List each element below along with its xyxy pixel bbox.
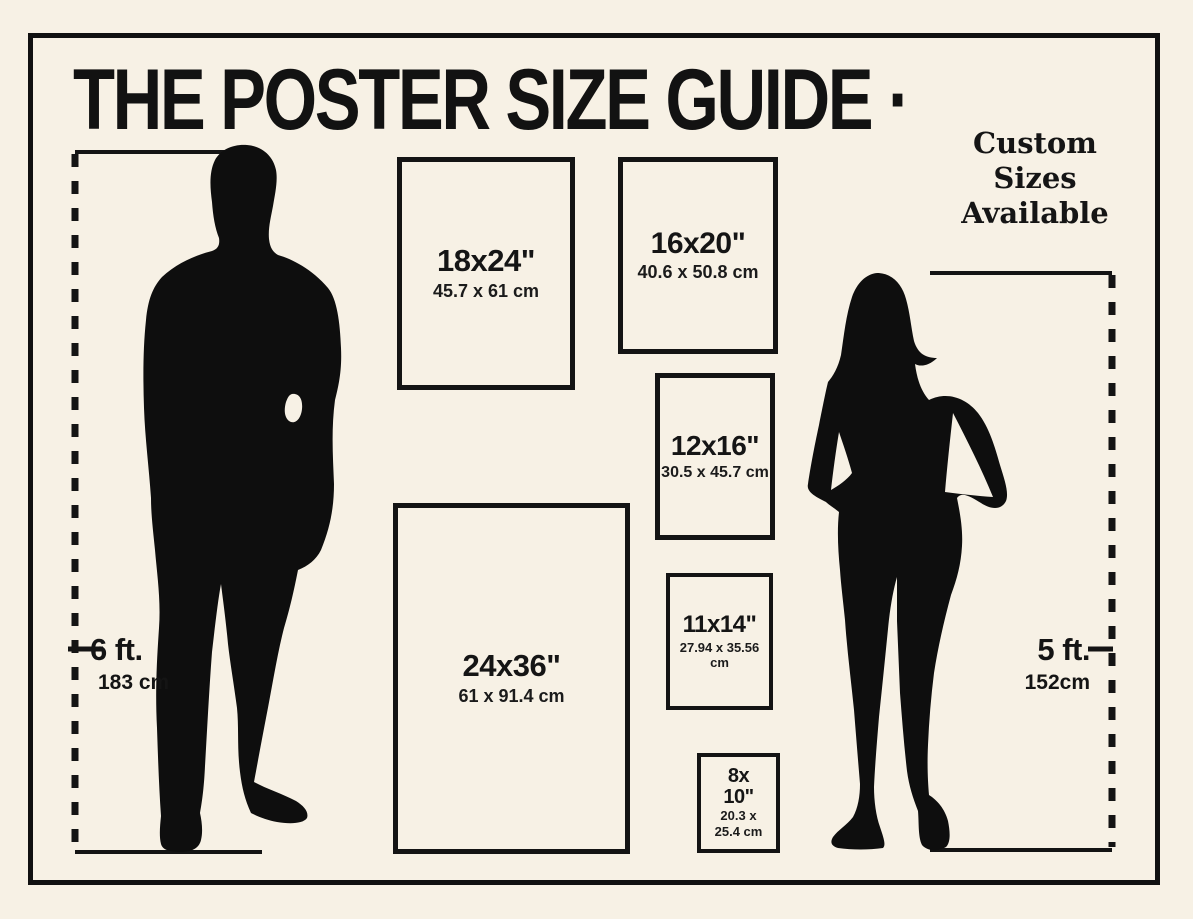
poster-metric-label: 30.5 x 45.7 cm bbox=[661, 464, 769, 482]
poster-size-label: 16x20" bbox=[651, 228, 746, 260]
poster-size-label-line1: 8x bbox=[728, 766, 749, 787]
poster-box-18x24: 18x24" 45.7 x 61 cm bbox=[397, 157, 575, 390]
poster-size-label: 12x16" bbox=[671, 431, 759, 460]
female-height-feet: 5 ft. bbox=[990, 634, 1090, 665]
poster-size-guide: THE POSTER SIZE GUIDE · Custom Sizes Ava… bbox=[0, 0, 1193, 919]
poster-box-16x20: 16x20" 40.6 x 50.8 cm bbox=[618, 157, 778, 354]
poster-box-8x10: 8x 10" 20.3 x 25.4 cm bbox=[697, 753, 780, 853]
poster-size-label: 11x14" bbox=[683, 612, 757, 637]
poster-box-11x14: 11x14" 27.94 x 35.56 cm bbox=[666, 573, 773, 710]
poster-metric-label-line1: 20.3 x bbox=[720, 809, 756, 824]
male-height-label: 6 ft. 183 cm bbox=[90, 634, 169, 693]
poster-box-24x36: 24x36" 61 x 91.4 cm bbox=[393, 503, 630, 854]
poster-size-label: 24x36" bbox=[463, 650, 561, 683]
poster-metric-label: 27.94 x 35.56 cm bbox=[670, 641, 769, 671]
male-height-cm: 183 cm bbox=[98, 672, 169, 693]
female-height-label: 5 ft. 152cm bbox=[990, 634, 1090, 693]
male-height-feet: 6 ft. bbox=[90, 634, 169, 665]
poster-metric-label: 61 x 91.4 cm bbox=[458, 686, 564, 707]
poster-size-label-line2: 10" bbox=[723, 787, 753, 808]
poster-size-label: 18x24" bbox=[437, 245, 535, 278]
female-height-cm: 152cm bbox=[990, 672, 1090, 693]
poster-metric-label-line2: 25.4 cm bbox=[715, 825, 763, 840]
poster-metric-label: 40.6 x 50.8 cm bbox=[637, 262, 758, 283]
poster-box-12x16: 12x16" 30.5 x 45.7 cm bbox=[655, 373, 775, 540]
man-silhouette bbox=[143, 145, 341, 852]
poster-metric-label: 45.7 x 61 cm bbox=[433, 281, 539, 302]
woman-silhouette bbox=[808, 273, 1007, 850]
